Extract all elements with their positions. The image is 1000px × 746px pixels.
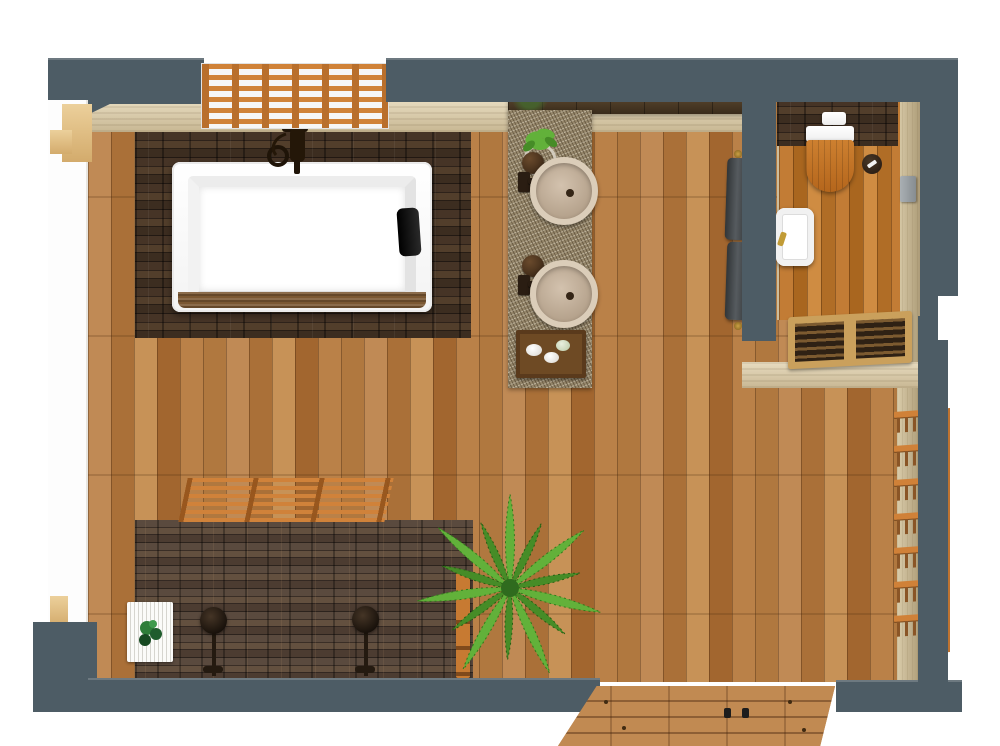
wall-right-notch (938, 296, 960, 340)
amenity-tray (516, 330, 586, 378)
wall-accessory (900, 176, 916, 202)
door-stopper-2 (742, 708, 749, 718)
tray-stone (526, 344, 542, 356)
divider-wall-toilet-room (742, 85, 776, 341)
deck-screw (788, 700, 792, 704)
left-wall-trim-block (50, 130, 72, 154)
tub-window-lattice (202, 64, 388, 128)
toilet-paper-holder (862, 154, 882, 174)
bathtub-wood-apron (178, 292, 426, 308)
sink-drain-2 (566, 292, 574, 300)
wall-right-lower (918, 316, 948, 712)
door-stopper-1 (724, 708, 731, 718)
bathtub-basin (188, 176, 416, 302)
toilet-seat (806, 140, 854, 192)
shower-head-2 (352, 606, 379, 633)
bathtub (172, 162, 432, 312)
mat-plant-icon (133, 614, 167, 652)
tray-stone (544, 352, 559, 363)
sink-drain-1 (566, 189, 574, 197)
duckboard-slats (856, 318, 905, 359)
deck-screw (802, 728, 806, 732)
deck-screw (622, 726, 626, 730)
duckboard-slats (795, 321, 844, 362)
deck-screw (604, 700, 608, 704)
towel-hook-bottom (734, 322, 742, 330)
tub-headrest-pillow (396, 207, 421, 256)
wall-top (386, 58, 958, 102)
entry-deck (552, 686, 850, 746)
palm-plant-icon (400, 476, 620, 700)
wall-top-left (48, 58, 204, 104)
left-window-wall (48, 100, 88, 678)
shower-base-1 (203, 666, 223, 673)
towel-hook-top (734, 150, 742, 158)
flush-plate (822, 112, 846, 125)
vessel-sink-2 (530, 260, 598, 328)
duckboard-step (788, 311, 912, 369)
tray-soap (556, 340, 570, 351)
vessel-sink-1 (530, 157, 598, 225)
shower-pergola-screen (178, 478, 393, 522)
duckboard-rail (844, 321, 856, 360)
toilet-paper-roll (867, 159, 877, 168)
shower-base-2 (355, 666, 375, 673)
floorplan-stage (0, 0, 1000, 746)
shower-head-1 (200, 607, 227, 634)
wall-bottom-left (88, 678, 600, 712)
tub-faucet-icon (264, 122, 322, 178)
